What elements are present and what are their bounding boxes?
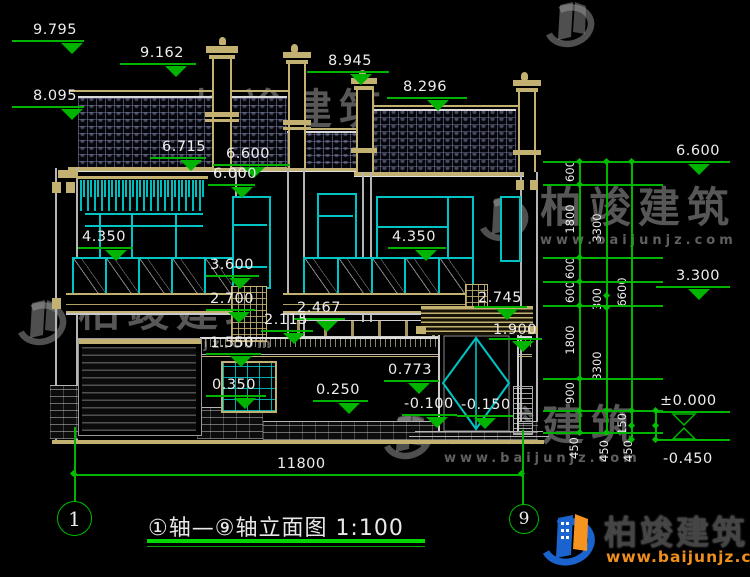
elevation-triangle-icon (103, 249, 129, 262)
wall-bracket (516, 180, 524, 190)
elevation-triangle-icon (406, 382, 432, 395)
window-head (85, 213, 203, 215)
wall-bracket (52, 298, 61, 309)
elevation-label: 1.900 (493, 322, 537, 338)
elevation-label: 9.795 (33, 22, 77, 38)
dim-chain-label: 600 (563, 148, 577, 194)
dim-chain-label: 450 (597, 428, 611, 474)
dim-chain-label: 450 (621, 428, 635, 474)
elevation-triangle-icon (510, 340, 536, 353)
elevation-label: ±0.000 (660, 393, 717, 409)
dim-extension-line (74, 427, 76, 502)
window-transom (85, 225, 203, 227)
dim-tick (576, 278, 583, 285)
dim-tick (628, 158, 635, 165)
column-right-finial (521, 72, 528, 80)
column-2-shaft (356, 90, 374, 172)
stair-window-transom (232, 224, 267, 226)
dim-tick (652, 436, 659, 443)
elevation-triangle-icon (314, 320, 340, 333)
elevation-triangle-icon (281, 332, 307, 345)
elevation-triangle-icon (671, 427, 697, 440)
watermark (540, 0, 600, 50)
overall-dim-line (74, 474, 524, 476)
window-transom (317, 215, 353, 217)
wall-line (536, 172, 538, 440)
dim-tick (603, 292, 610, 299)
elevation-triangle-icon (59, 108, 85, 121)
column-mid-cap (283, 52, 311, 58)
dim-tick (603, 158, 610, 165)
dim-tick (576, 254, 583, 261)
elevation-triangle-icon (686, 163, 712, 176)
elevation-label: 3.300 (676, 268, 720, 284)
dim-tick (576, 302, 583, 309)
dim-tick (628, 407, 635, 414)
elevation-label: 4.350 (82, 229, 126, 245)
column-mid-band (283, 120, 311, 125)
title-underline (147, 539, 425, 543)
elevation-label: 6.000 (213, 166, 257, 182)
dim-tick (576, 181, 583, 188)
right-roof-tiles (362, 109, 516, 174)
dim-tick (652, 407, 659, 414)
elevation-triangle-icon (232, 397, 258, 410)
chimney-band (205, 112, 239, 117)
elevation-triangle-icon (228, 355, 254, 368)
right-window-small (317, 193, 357, 262)
fringe-rail (76, 176, 208, 179)
axis-bubble-1: 1 (57, 501, 92, 536)
elevation-label: 8.296 (403, 79, 447, 95)
drawing-title: ①轴—⑨轴立面图 1:100 (148, 510, 404, 542)
dim-extension-line (543, 257, 663, 259)
elevation-triangle-icon (472, 417, 498, 430)
brand-logo-icon (536, 502, 600, 572)
column-right-band (513, 150, 541, 155)
elevation-triangle-icon (226, 311, 252, 324)
elevation-label: 9.162 (140, 45, 184, 61)
chimney-finial (219, 37, 226, 45)
elevation-label: 0.773 (388, 362, 432, 378)
elevation-triangle-icon (494, 308, 520, 321)
elevation-triangle-icon (229, 186, 255, 199)
elevation-triangle-icon (424, 416, 450, 429)
wall-bracket (66, 182, 75, 193)
dim-chain-line (631, 161, 633, 441)
wall-bracket (52, 182, 61, 193)
elevation-triangle-icon (59, 42, 85, 55)
overall-dim-label: 11800 (277, 456, 326, 472)
watermark-url: www.baijunjz.com (444, 451, 641, 466)
elevation-label: 0.350 (212, 377, 256, 393)
elevation-triangle-icon (425, 99, 451, 112)
dim-tick (576, 158, 583, 165)
elevation-label: 1.550 (210, 335, 254, 351)
elevation-triangle-icon (163, 65, 189, 78)
column-mid-finial (291, 44, 298, 52)
column-2-band (351, 148, 377, 153)
window-transom (376, 226, 449, 228)
dim-chain-label: 1800 (563, 196, 577, 242)
step-line (415, 431, 543, 432)
cad-elevation-canvas: 柏竣建筑 www.baijunjz.com 柏竣建筑 www.baijunjz.… (0, 0, 750, 577)
elevation-label: 6.715 (162, 139, 206, 155)
axis-number: 9 (519, 509, 530, 529)
right-window-narrow (500, 196, 521, 262)
dim-tick (576, 407, 583, 414)
dim-extension-line (543, 281, 663, 283)
elevation-label: 0.250 (316, 382, 360, 398)
chimney-cap (206, 46, 238, 53)
step-line (409, 436, 549, 437)
brand-logo-name: 柏竣建筑 (604, 506, 748, 554)
brand-logo-url: www.baijunjz.com (606, 548, 750, 566)
ground-line (52, 440, 544, 444)
watermark-logo-icon (12, 290, 72, 348)
column-mid-shaft (288, 64, 306, 168)
elevation-label: 4.350 (392, 229, 436, 245)
elevation-label: 3.600 (210, 257, 254, 273)
elevation-triangle-icon (413, 249, 439, 262)
elevation-label: -0.150 (461, 397, 511, 413)
dim-chain-label: 3300 (590, 343, 604, 389)
wall-bracket (530, 180, 538, 190)
window-mullion (131, 213, 133, 258)
elevation-label: 6.600 (676, 143, 720, 159)
elevation-triangle-icon (227, 277, 253, 290)
dim-chain-line (579, 161, 581, 433)
elevation-triangle-icon (686, 288, 712, 301)
right-roof-eave (354, 172, 524, 177)
elevation-label: 6.600 (226, 146, 270, 162)
dim-chain-label: 300 (590, 276, 604, 322)
elevation-label: 8.945 (328, 53, 372, 69)
vent-grille (513, 386, 533, 435)
window-mullion (175, 213, 177, 258)
dim-tick (603, 407, 610, 414)
wall-eave-return (58, 170, 78, 178)
chimney-band2 (205, 119, 239, 122)
column-right-cap (513, 80, 541, 86)
axis-bubble-9: 9 (509, 504, 539, 534)
column-mid-band2 (283, 127, 311, 130)
elevation-triangle-icon (178, 159, 204, 172)
title-underline-thin (147, 546, 425, 547)
elevation-label: 2.745 (478, 290, 522, 306)
watermark-logo-icon (540, 0, 600, 50)
axis-number: 1 (68, 507, 81, 531)
elevation-triangle-icon (348, 73, 374, 86)
dim-extension-line (543, 184, 663, 186)
elevation-triangle-icon (336, 402, 362, 415)
dim-chain-label: 3300 (590, 205, 604, 251)
dim-extension-line (543, 378, 663, 380)
dim-chain-label: 1800 (563, 317, 577, 363)
dim-tick (652, 422, 659, 429)
dim-chain-label: 600 (563, 269, 577, 315)
right-balcony-glazing (303, 257, 474, 297)
column-right-shaft (518, 92, 536, 172)
garage-door (78, 338, 202, 436)
dim-chain-label: 6600 (615, 269, 629, 315)
left-roof-ridge (70, 90, 295, 92)
elevation-label: -0.100 (404, 396, 454, 412)
elevation-triangle-icon (671, 413, 697, 426)
elevation-label: 8.095 (33, 88, 77, 104)
canopy-end-bracket (416, 326, 426, 334)
dim-extension-line (522, 430, 524, 505)
elevation-label: -0.450 (663, 451, 713, 467)
elevation-label: 2.115 (264, 312, 308, 328)
eave-fringe-decoration (83, 180, 205, 197)
dim-tick (576, 375, 583, 382)
elevation-label: 2.700 (210, 291, 254, 307)
